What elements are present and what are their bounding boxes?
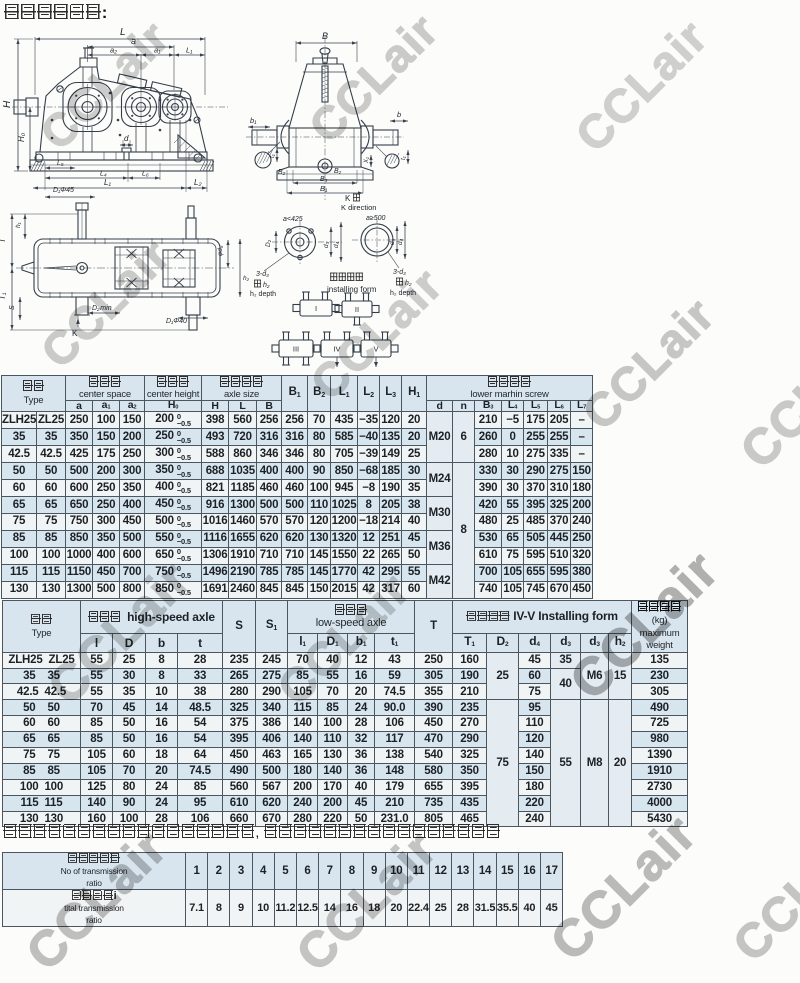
svg-text:t₁: t₁ [400,156,407,160]
svg-text:L₂: L₂ [194,178,202,187]
svg-text:X₁: X₁ [364,157,370,164]
svg-text:L₄: L₄ [100,171,107,178]
svg-text:b₁: b₁ [250,116,257,125]
svg-text:3-d₃: 3-d₃ [256,271,269,278]
svg-text:D₂: D₂ [265,239,272,247]
svg-text:S: S [9,305,16,310]
svg-text:h₁: h₁ [15,222,22,228]
svg-text:L₆: L₆ [142,171,149,178]
svg-text:II: II [355,305,359,314]
svg-text:3-d₃: 3-d₃ [393,269,406,276]
svg-text:a₁: a₁ [154,46,161,55]
svg-text:III: III [293,345,299,354]
svg-text:D₁Φ40: D₁Φ40 [166,318,187,325]
svg-text:K: K [345,194,351,203]
svg-text:B: B [322,31,328,41]
svg-text:B₃: B₃ [320,176,328,183]
svg-text:h₂: h₂ [405,280,412,287]
svg-text:B₁: B₁ [320,184,328,193]
svg-text:H₀: H₀ [17,132,26,142]
svg-text:L₁: L₁ [186,46,193,55]
svg-text:L₅: L₅ [57,160,64,167]
svg-text:I: I [315,304,317,313]
svg-text:φd₆: φd₆ [217,245,224,256]
svg-text:t₁: t₁ [269,154,276,158]
svg-text:T₁: T₁ [0,292,7,300]
svg-text:B₂: B₂ [334,168,342,175]
svg-text:H: H [2,100,13,108]
svg-text:IV: IV [333,345,340,354]
svg-text:V: V [373,345,378,354]
svg-text:h₂ depth: h₂ depth [250,291,276,298]
svg-text:h₂: h₂ [243,275,250,282]
svg-text:L: L [120,27,126,38]
svg-text:K direction: K direction [341,203,376,212]
svg-text:K: K [72,329,78,338]
svg-text:a₂: a₂ [110,46,117,55]
svg-text:h₂: h₂ [263,282,270,289]
svg-text:D₂ min: D₂ min [92,305,112,312]
svg-text:D₁Φ45: D₁Φ45 [53,187,74,194]
svg-text:d₃: d₃ [389,238,396,245]
svg-text:h₂ depth: h₂ depth [390,290,416,297]
svg-text:B₂: B₂ [278,169,286,176]
svg-text:a≥500: a≥500 [366,215,386,222]
svg-text:T: T [0,237,7,243]
svg-text:L₁: L₁ [104,178,111,187]
svg-text:a: a [131,36,136,46]
svg-text:b: b [397,110,401,119]
svg-text:d₄: d₄ [333,241,340,248]
svg-text:d₃: d₃ [323,241,330,248]
svg-text:d₄: d₄ [397,238,404,245]
svg-text:d: d [124,134,129,143]
